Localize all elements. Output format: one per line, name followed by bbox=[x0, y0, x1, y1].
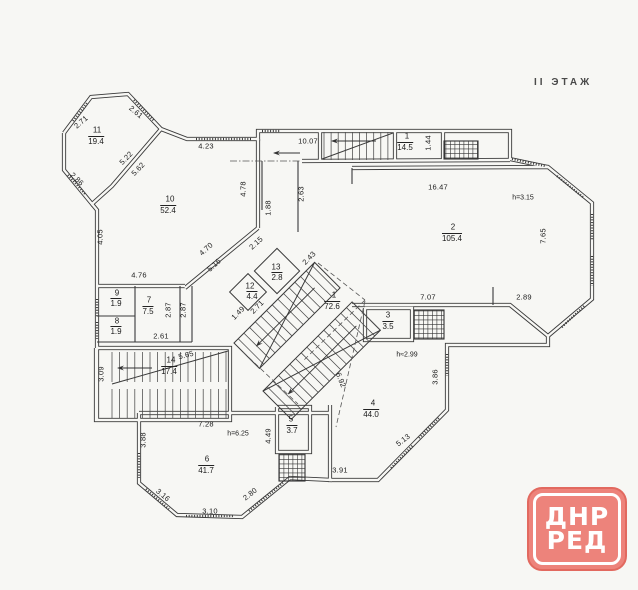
staircase-stairwell bbox=[112, 351, 228, 418]
shaft-top-right bbox=[444, 141, 478, 159]
shaft-center-right bbox=[414, 310, 444, 339]
staircase-top bbox=[274, 132, 393, 160]
walls-outer bbox=[64, 94, 592, 517]
logo-text-line2: РЕД bbox=[547, 529, 608, 553]
shaft-bottom-center bbox=[279, 454, 305, 481]
logo-frame: ДНР РЕД bbox=[533, 493, 621, 565]
watermark-logo: ДНР РЕД bbox=[527, 487, 627, 571]
floor-title: II ЭТАЖ bbox=[534, 77, 592, 88]
floor-plan-canvas: 1119.41052.4172.62105.433.5444.053.7641.… bbox=[0, 0, 638, 590]
room-12-shaft bbox=[230, 274, 267, 311]
